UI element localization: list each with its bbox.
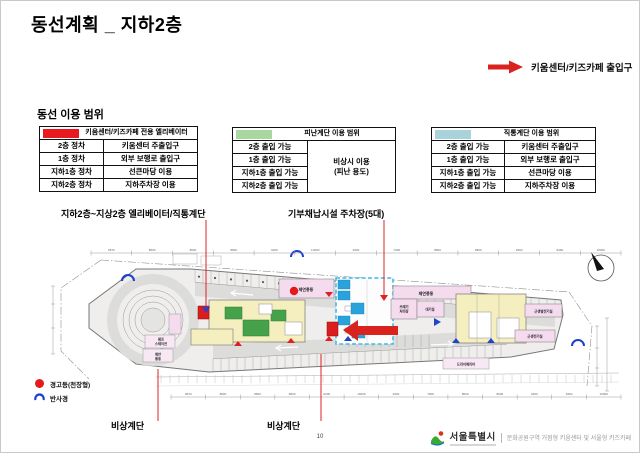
red-arrow-right-icon <box>488 60 524 74</box>
room-label-electrical: 근생전기실 <box>527 334 542 339</box>
escape-stair-table-header: 피난계단 이용 범위 <box>233 128 396 141</box>
room-label-generator: 근생발전기실 <box>534 309 552 314</box>
footer: 서울특별시 문화공원구역 거점형 키움센터 및 서울형 키즈카페 <box>430 429 631 446</box>
bottom-dimension-line: 9670860086008600920010200920070008600890… <box>171 392 621 399</box>
top-dimension-line: 9670860086008600920010200920070008600890… <box>91 248 621 255</box>
table-row: 지하2층 정차지하주차장 이용 <box>40 179 198 192</box>
footer-divider <box>501 433 502 443</box>
dim-label: 9200 <box>393 392 400 396</box>
dim-label: 9400 <box>516 248 523 252</box>
room-label-trash: 처리장 <box>399 309 408 314</box>
room-label-pump: 펌프 <box>158 337 164 342</box>
mirror-icon <box>34 392 45 403</box>
elevator-legend-table: 키움센터/키즈카페 전용 엘리베이터 2층 정차키움센터 주출입구 1층 정차외… <box>39 126 198 192</box>
legend-item-warning-light: 경고등(천장형) <box>34 378 90 389</box>
dim-label: 9200 <box>323 392 330 396</box>
dim-label: 8600 <box>220 392 227 396</box>
slide: 동선계획 _ 지하2층 키움센터/키즈카페 출입구 동선 이용 범위 키움센터/… <box>0 0 640 453</box>
escape-note-cell: 비상시 이용 (피난 용도) <box>308 141 396 193</box>
agency-subline <box>450 444 496 446</box>
escape-stair-legend-table: 피난계단 이용 범위 2층 출입 가능 비상시 이용 (피난 용도) 1층 출입… <box>232 127 396 193</box>
mirror-icon <box>291 251 303 257</box>
table-row: 1층 출입 가능외부 보행로 출입구 <box>432 154 596 167</box>
dim-label: 8600 <box>230 248 237 252</box>
dim-label: 9200 <box>271 248 278 252</box>
mirror-icon <box>572 340 584 346</box>
table-row: 1층 정차외부 보행로 출입구 <box>40 153 198 166</box>
room-label-waiting: 대기실 <box>425 307 434 312</box>
table-row: 지하2층 출입 가능지하주차장 이용 <box>432 180 596 193</box>
warning-light-icon <box>290 287 298 295</box>
legend-heading: 동선 이용 범위 <box>37 106 104 122</box>
agency-lockup: 서울특별시 <box>450 429 496 446</box>
stair-core-green <box>225 307 242 319</box>
dim-label: 9460 <box>557 248 564 252</box>
page-title: 동선계획 _ 지하2층 <box>31 11 182 37</box>
dim-label: 9460 <box>566 392 573 396</box>
red-swatch <box>43 129 79 138</box>
elevator-table-header: 키움센터/키즈카페 전용 엘리베이터 <box>40 127 198 140</box>
table-row: 지하1층 정차선큰마당 이용 <box>40 166 198 179</box>
dim-label: 10200 <box>357 392 366 396</box>
dim-label: 8600 <box>434 248 441 252</box>
table-row: 2층 출입 가능 비상시 이용 (피난 용도) <box>233 141 396 154</box>
room-label-smoke-3: 제연 <box>155 352 161 357</box>
room-label-smoke-3: 풍동 <box>155 356 161 361</box>
dim-label: 9670 <box>108 248 115 252</box>
kium-elevator-cell <box>327 322 338 336</box>
dim-label: 7000 <box>393 248 400 252</box>
dim-label: 7000 <box>427 392 434 396</box>
exterior-structures <box>173 254 221 265</box>
seoul-logo-icon <box>430 430 445 446</box>
teal-swatch <box>435 130 471 139</box>
stair-core-green <box>243 320 269 336</box>
dim-label: 8600 <box>254 392 261 396</box>
north-compass-icon <box>588 252 614 281</box>
warning-light-icon <box>34 378 45 389</box>
dim-label: 10000 <box>596 248 605 252</box>
symbol-legend: 경고등(천장형) 반사경 <box>34 378 90 403</box>
agency-name: 서울특별시 <box>450 429 496 443</box>
dim-label: 8600 <box>289 392 296 396</box>
dim-label: 9670 <box>185 392 192 396</box>
room-label-pump: 스테이션 <box>155 341 167 346</box>
dim-label: 8900 <box>475 248 482 252</box>
room-label-dry-area: 드라이에리어 <box>457 362 475 367</box>
dim-label: 10200 <box>311 248 320 252</box>
legend-item-mirror: 반사경 <box>34 392 90 403</box>
dim-label: 9400 <box>531 392 538 396</box>
dim-label: 8900 <box>497 392 504 396</box>
room-label-smoke-2: 제연풍동 <box>419 290 434 296</box>
green-swatch <box>236 130 272 139</box>
table-row: 지하1층 출입 가능선큰마당 이용 <box>432 167 596 180</box>
dim-label: 8600 <box>149 248 156 252</box>
dim-label: 9200 <box>353 248 360 252</box>
entrance-callout: 키움센터/키즈카페 출입구 <box>488 60 632 74</box>
dim-label: 8600 <box>462 392 469 396</box>
table-row: 2층 정차키움센터 주출입구 <box>40 140 198 153</box>
stair-core-green <box>271 310 286 321</box>
project-name: 문화공원구역 거점형 키움센터 및 서울형 키즈카페 <box>507 433 631 442</box>
direct-stair-table-header: 직통계단 이용 범위 <box>432 128 596 141</box>
dim-label: 10000 <box>600 392 609 396</box>
floor-plan: 9670860086008600920010200920070008600890… <box>41 207 636 453</box>
room-label-smoke-1: 제연풍동 <box>299 286 314 292</box>
room-label-trash: 쓰레기 <box>399 304 408 309</box>
table-row: 2층 출입 가능키움센터 주출입구 <box>432 141 596 154</box>
direct-stair-legend-table: 직통계단 이용 범위 2층 출입 가능키움센터 주출입구 1층 출입 가능외부 … <box>431 127 596 193</box>
entrance-callout-label: 키움센터/키즈카페 출입구 <box>531 60 632 74</box>
dim-label: 8600 <box>190 248 197 252</box>
